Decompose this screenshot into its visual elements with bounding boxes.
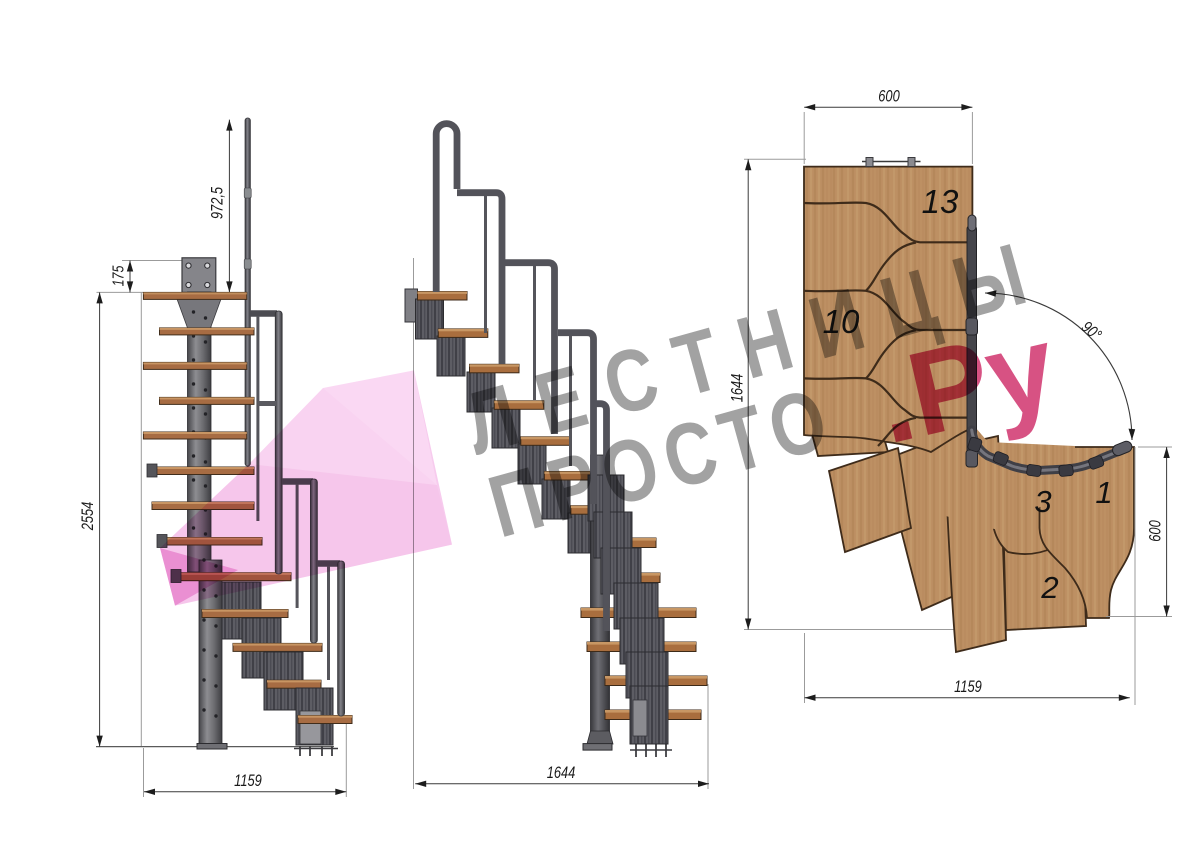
svg-text:90°: 90° xyxy=(1078,318,1105,345)
svg-text:2554: 2554 xyxy=(80,502,98,531)
svg-text:175: 175 xyxy=(110,266,128,287)
svg-text:600: 600 xyxy=(1147,520,1165,542)
svg-text:2: 2 xyxy=(1040,570,1058,605)
svg-text:1159: 1159 xyxy=(954,679,982,697)
svg-text:13: 13 xyxy=(922,183,959,220)
svg-text:1159: 1159 xyxy=(234,773,262,791)
svg-text:972,5: 972,5 xyxy=(209,186,227,219)
svg-text:1644: 1644 xyxy=(547,765,576,783)
svg-text:3: 3 xyxy=(1034,484,1051,519)
svg-text:1: 1 xyxy=(1095,475,1112,510)
svg-text:600: 600 xyxy=(878,88,900,106)
